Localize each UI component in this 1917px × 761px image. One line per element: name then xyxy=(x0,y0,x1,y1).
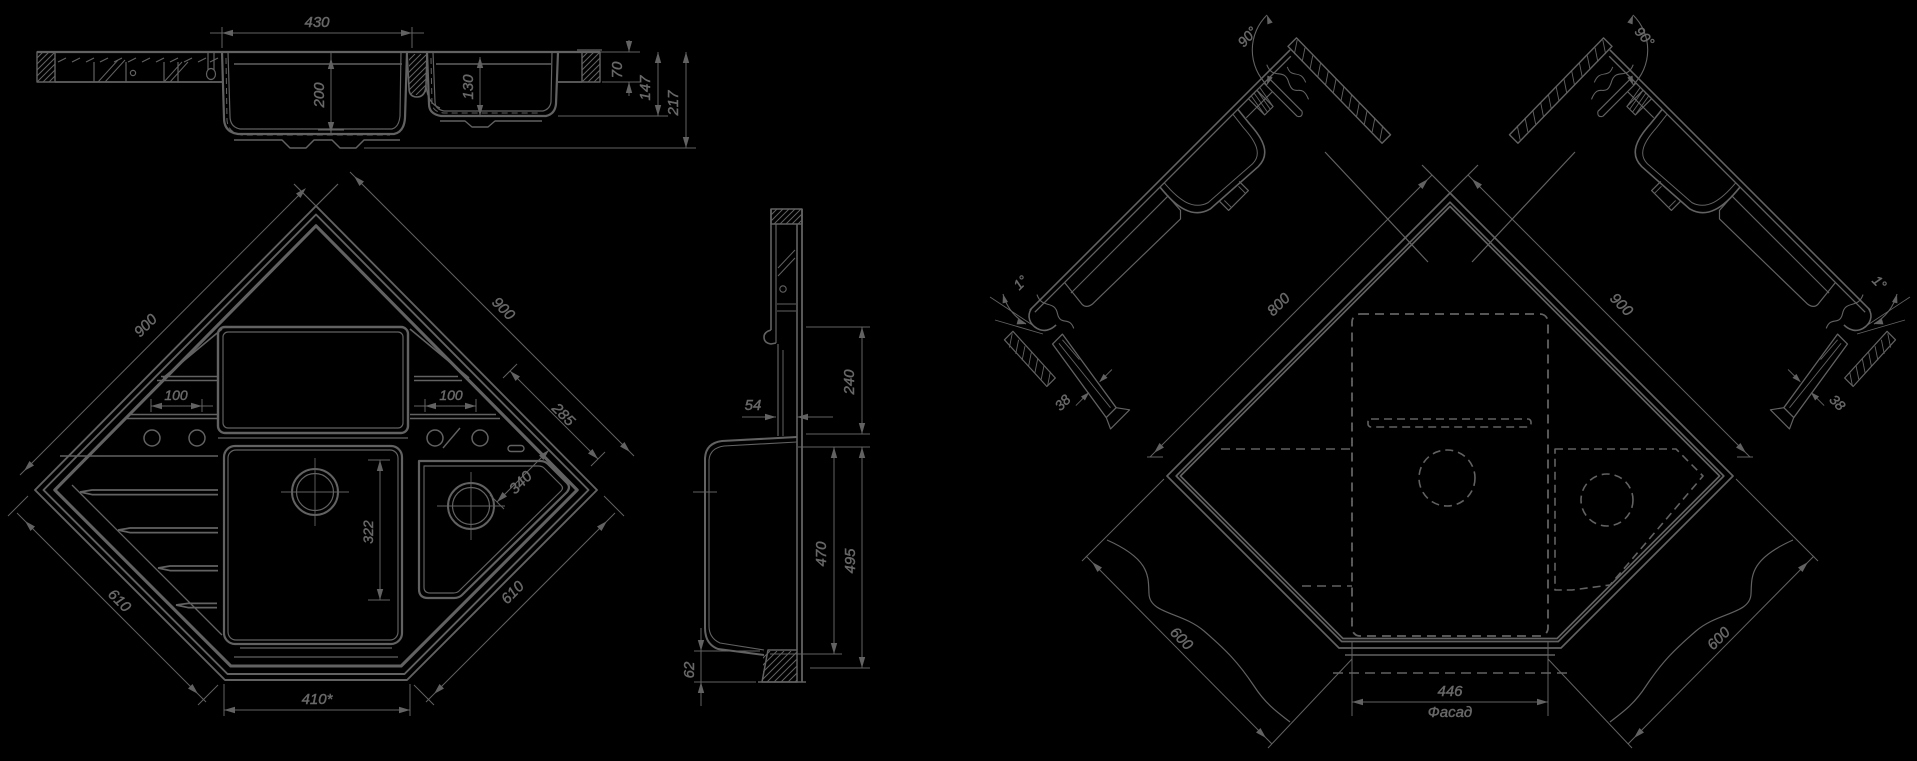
svg-text:217: 217 xyxy=(665,90,682,117)
svg-text:100: 100 xyxy=(164,387,188,403)
svg-text:70: 70 xyxy=(609,61,626,78)
svg-text:62: 62 xyxy=(681,661,698,678)
svg-text:446: 446 xyxy=(1437,683,1463,700)
svg-text:470: 470 xyxy=(813,541,830,567)
svg-text:240: 240 xyxy=(841,369,858,396)
svg-text:100: 100 xyxy=(439,387,463,403)
svg-text:410*: 410* xyxy=(302,691,334,708)
svg-text:130: 130 xyxy=(460,74,477,100)
svg-text:322: 322 xyxy=(360,520,376,544)
svg-text:147: 147 xyxy=(637,75,654,101)
svg-text:495: 495 xyxy=(842,548,859,574)
svg-text:200: 200 xyxy=(311,82,328,109)
svg-text:Фасад: Фасад xyxy=(1428,704,1472,721)
svg-text:54: 54 xyxy=(745,397,762,414)
svg-text:430: 430 xyxy=(304,14,330,31)
